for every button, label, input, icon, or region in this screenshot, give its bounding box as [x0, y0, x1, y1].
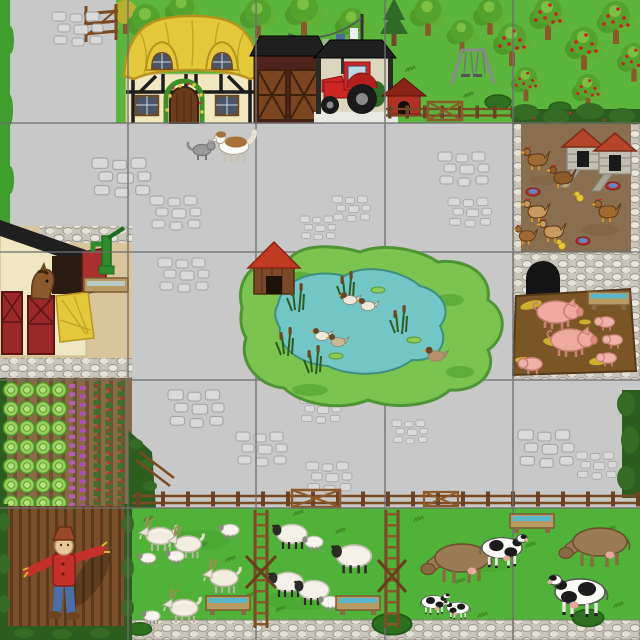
scarecrow-boot [66, 612, 80, 620]
lily-pad [371, 287, 385, 293]
lily-pad [329, 353, 343, 359]
feed-bowl [606, 182, 620, 190]
scarecrow-boot [48, 611, 62, 619]
hayloft-opening [52, 256, 82, 294]
stone-wall [631, 124, 640, 252]
shelter-post [316, 58, 321, 114]
barn-door [258, 70, 286, 120]
barn-roof [250, 36, 328, 56]
lily-pad [407, 337, 421, 343]
feed-bowl [526, 188, 540, 196]
stone-wall [0, 358, 132, 378]
farmhouse-window [136, 96, 158, 115]
farm-mat [0, 0, 640, 640]
farmhouse [124, 16, 260, 123]
barn-door [290, 70, 318, 120]
clothes [350, 28, 358, 39]
tractor-exhaust [341, 56, 344, 74]
grass-verge [6, 26, 14, 54]
duck-pond [240, 242, 502, 406]
chicken-run [512, 124, 640, 252]
vegetable-garden [0, 378, 132, 511]
stable [0, 220, 132, 378]
stable-door [2, 292, 22, 354]
feed-bowl [576, 237, 590, 245]
grass-verge [6, 166, 14, 194]
bush [485, 95, 511, 109]
grass-verge [5, 94, 13, 126]
scarecrow-shirt [53, 554, 75, 586]
farm-mat-illustration [0, 0, 640, 640]
stable-door [28, 296, 54, 354]
farmhouse-window [216, 96, 238, 115]
